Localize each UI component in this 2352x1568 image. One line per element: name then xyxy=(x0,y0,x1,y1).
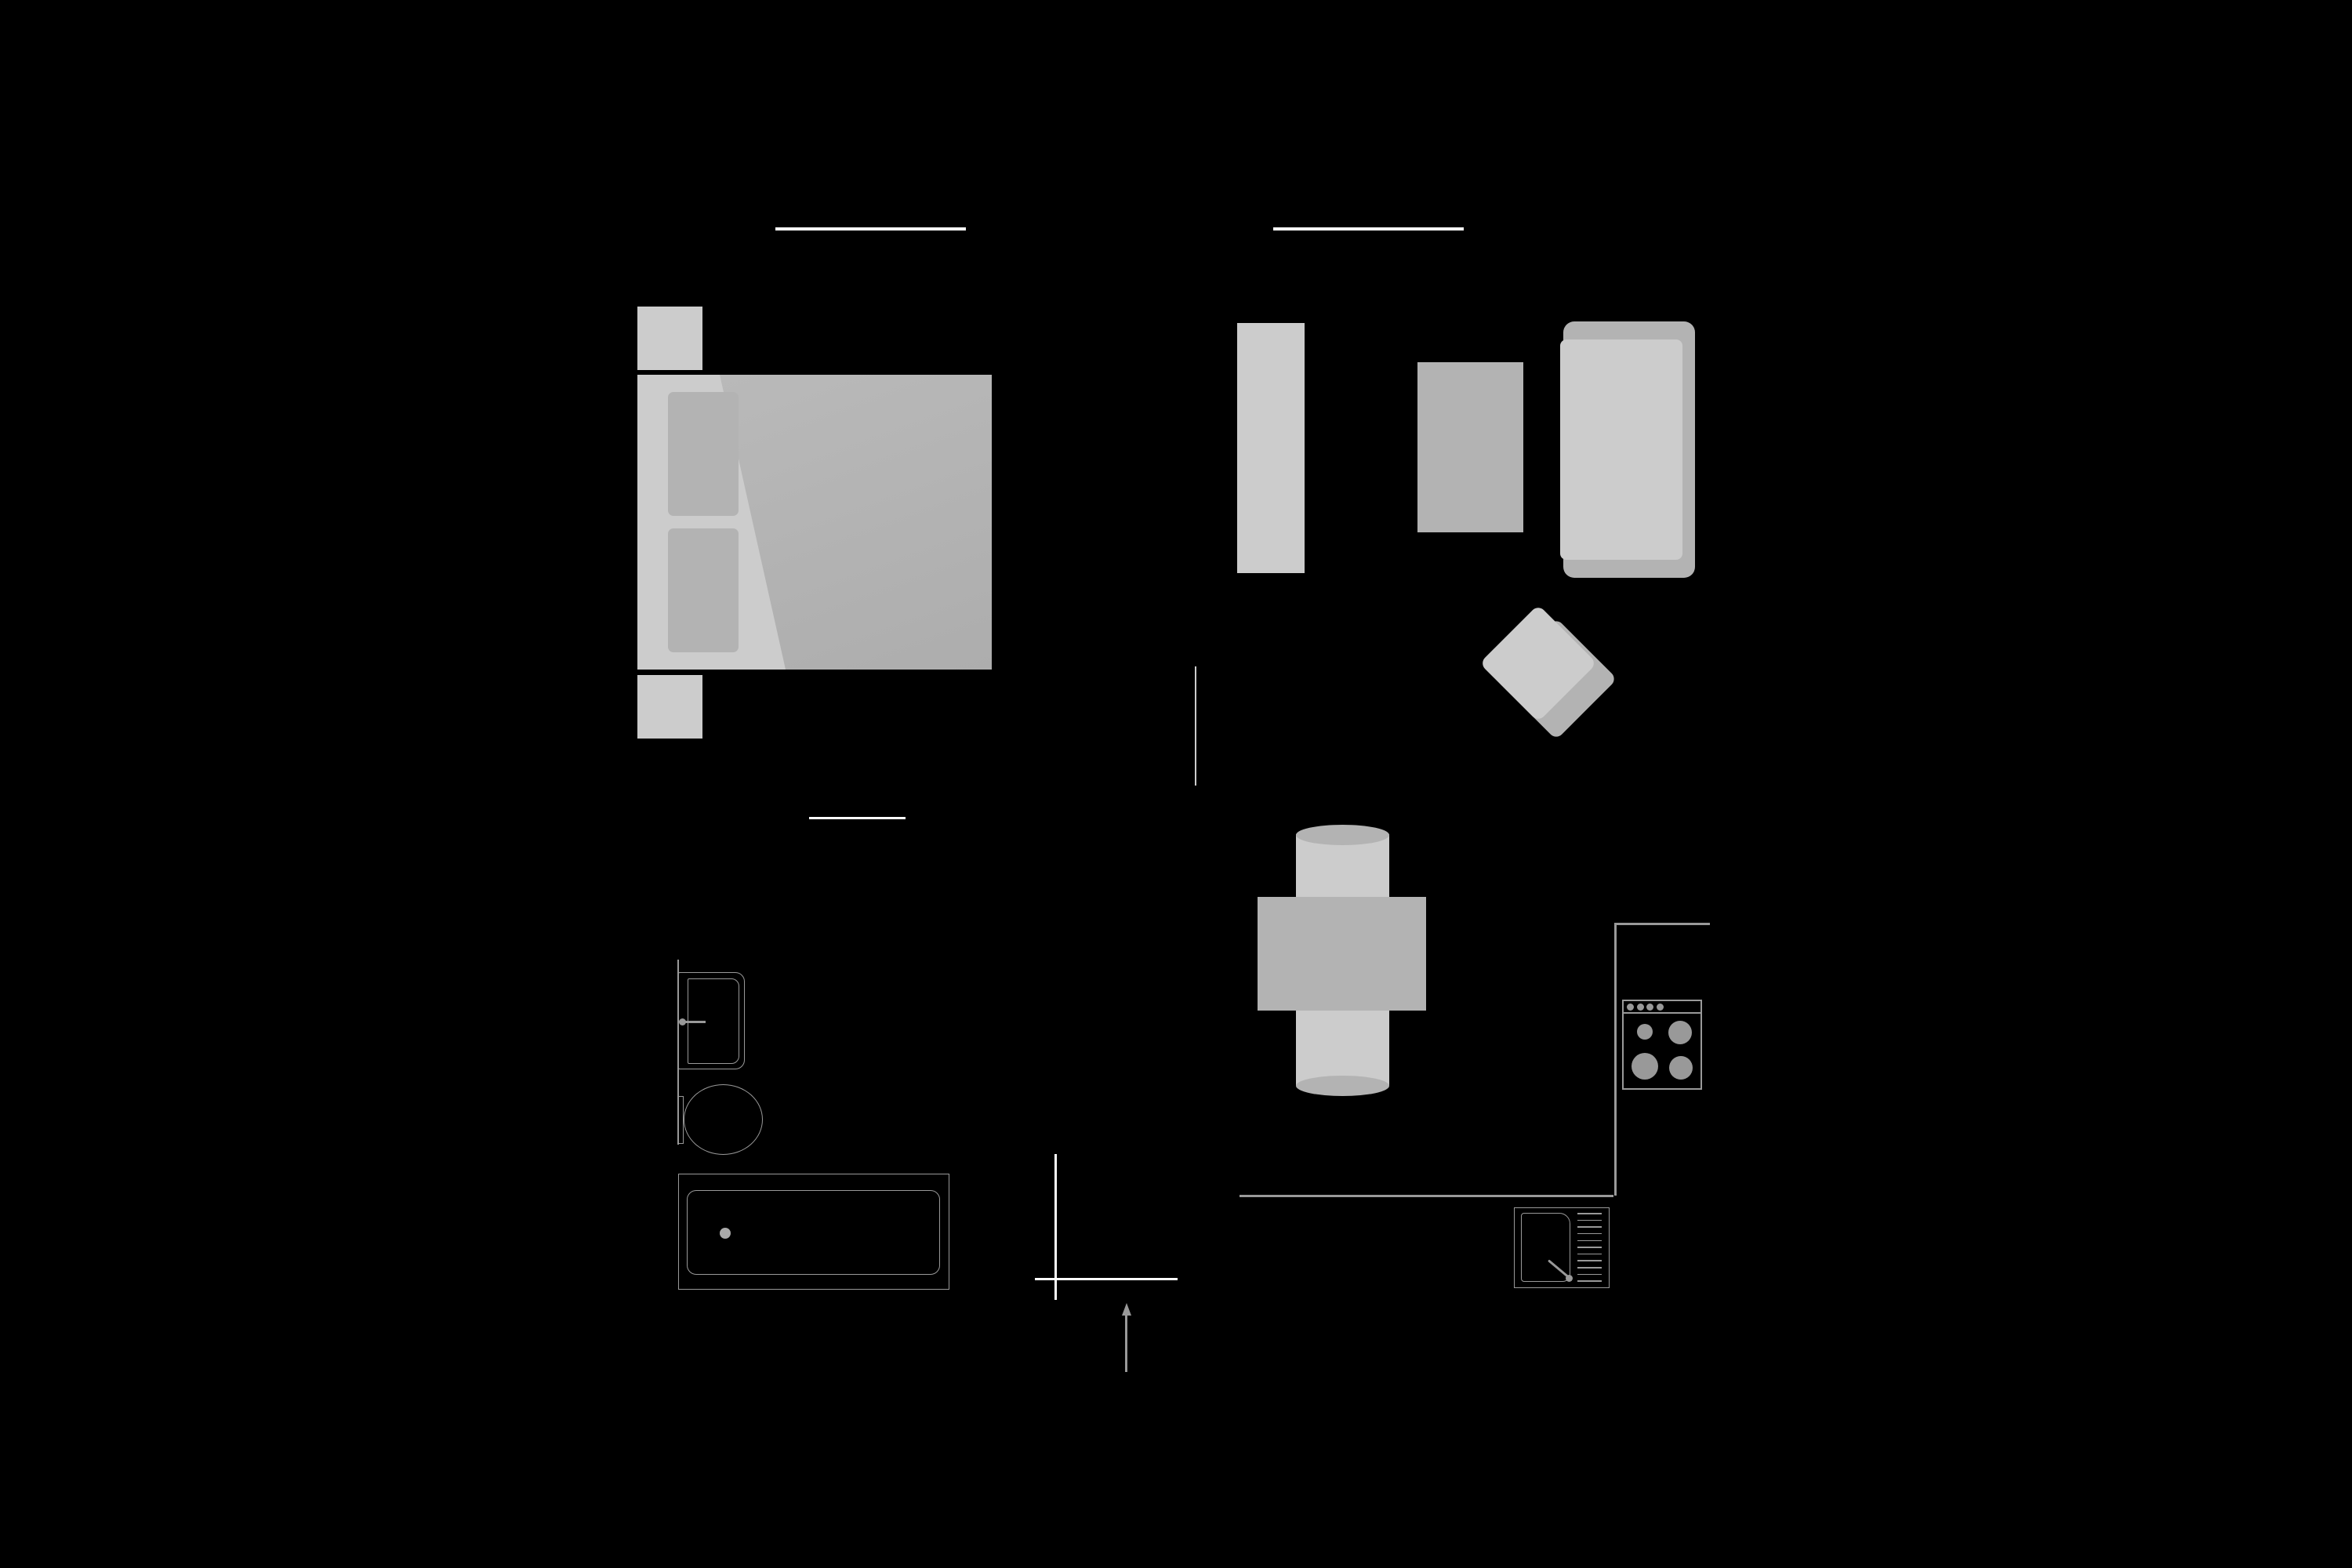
entrance-arrow-shaft xyxy=(1125,1316,1127,1372)
drainboard-line xyxy=(1577,1260,1602,1261)
toilet-tank xyxy=(678,1096,684,1144)
dining-chair-top xyxy=(1296,1076,1389,1096)
dining-table xyxy=(1258,897,1426,1011)
nightstand xyxy=(637,307,702,370)
wall-segment-center xyxy=(1195,666,1196,786)
pillow xyxy=(668,528,739,652)
stove-burner-icon xyxy=(1669,1056,1693,1080)
dining-chair-top xyxy=(1296,825,1389,845)
drainboard-line xyxy=(1577,1233,1602,1235)
drainboard-line xyxy=(1577,1240,1602,1242)
sideboard xyxy=(1237,323,1305,573)
drainboard-line xyxy=(1577,1254,1602,1255)
wall-segment-entry-horizontal xyxy=(1035,1278,1178,1280)
wall-segment-middle xyxy=(809,817,906,819)
drainboard-line xyxy=(1577,1267,1602,1269)
drainboard-line xyxy=(1577,1213,1602,1214)
stove-knobs xyxy=(1627,1004,1668,1011)
entrance-arrow-icon xyxy=(1122,1303,1131,1316)
stove-knob-icon xyxy=(1657,1004,1664,1011)
drainboard-line xyxy=(1577,1280,1602,1282)
wall-segment-kitchen-top xyxy=(1614,923,1710,925)
kitchen-counter-edge xyxy=(1240,1195,1613,1197)
rug-coffee-table xyxy=(1417,362,1523,532)
stove-burner-icon xyxy=(1632,1053,1658,1080)
stove-burner-icon xyxy=(1637,1024,1653,1040)
stove-control-panel-divider xyxy=(1624,1012,1700,1014)
sofa-seat-cushion xyxy=(1560,339,1682,560)
stove xyxy=(1622,1000,1702,1090)
drainboard-line xyxy=(1577,1247,1602,1248)
stove-knob-icon xyxy=(1646,1004,1653,1011)
bathtub-drain-dot xyxy=(720,1228,731,1239)
drainboard-line xyxy=(1577,1220,1602,1221)
wall-segment-kitchen-side xyxy=(1614,923,1617,1196)
stove-knob-icon xyxy=(1637,1004,1644,1011)
washbasin-faucet-icon xyxy=(683,1021,706,1023)
kitchen-faucet-dot xyxy=(1566,1275,1573,1282)
stove-knob-icon xyxy=(1627,1004,1634,1011)
drainboard-line xyxy=(1577,1274,1602,1276)
floor-plan-canvas xyxy=(0,0,2352,1568)
nightstand xyxy=(637,675,702,739)
drainboard-line xyxy=(1577,1226,1602,1228)
pillow xyxy=(668,392,739,516)
sink-drainboard xyxy=(1577,1213,1602,1282)
stove-burner-icon xyxy=(1668,1021,1692,1044)
wall-segment-living-top xyxy=(1273,227,1464,230)
wall-segment-bedroom-top xyxy=(775,227,966,230)
toilet-bowl xyxy=(684,1084,763,1155)
dining-chair xyxy=(1296,1006,1389,1086)
